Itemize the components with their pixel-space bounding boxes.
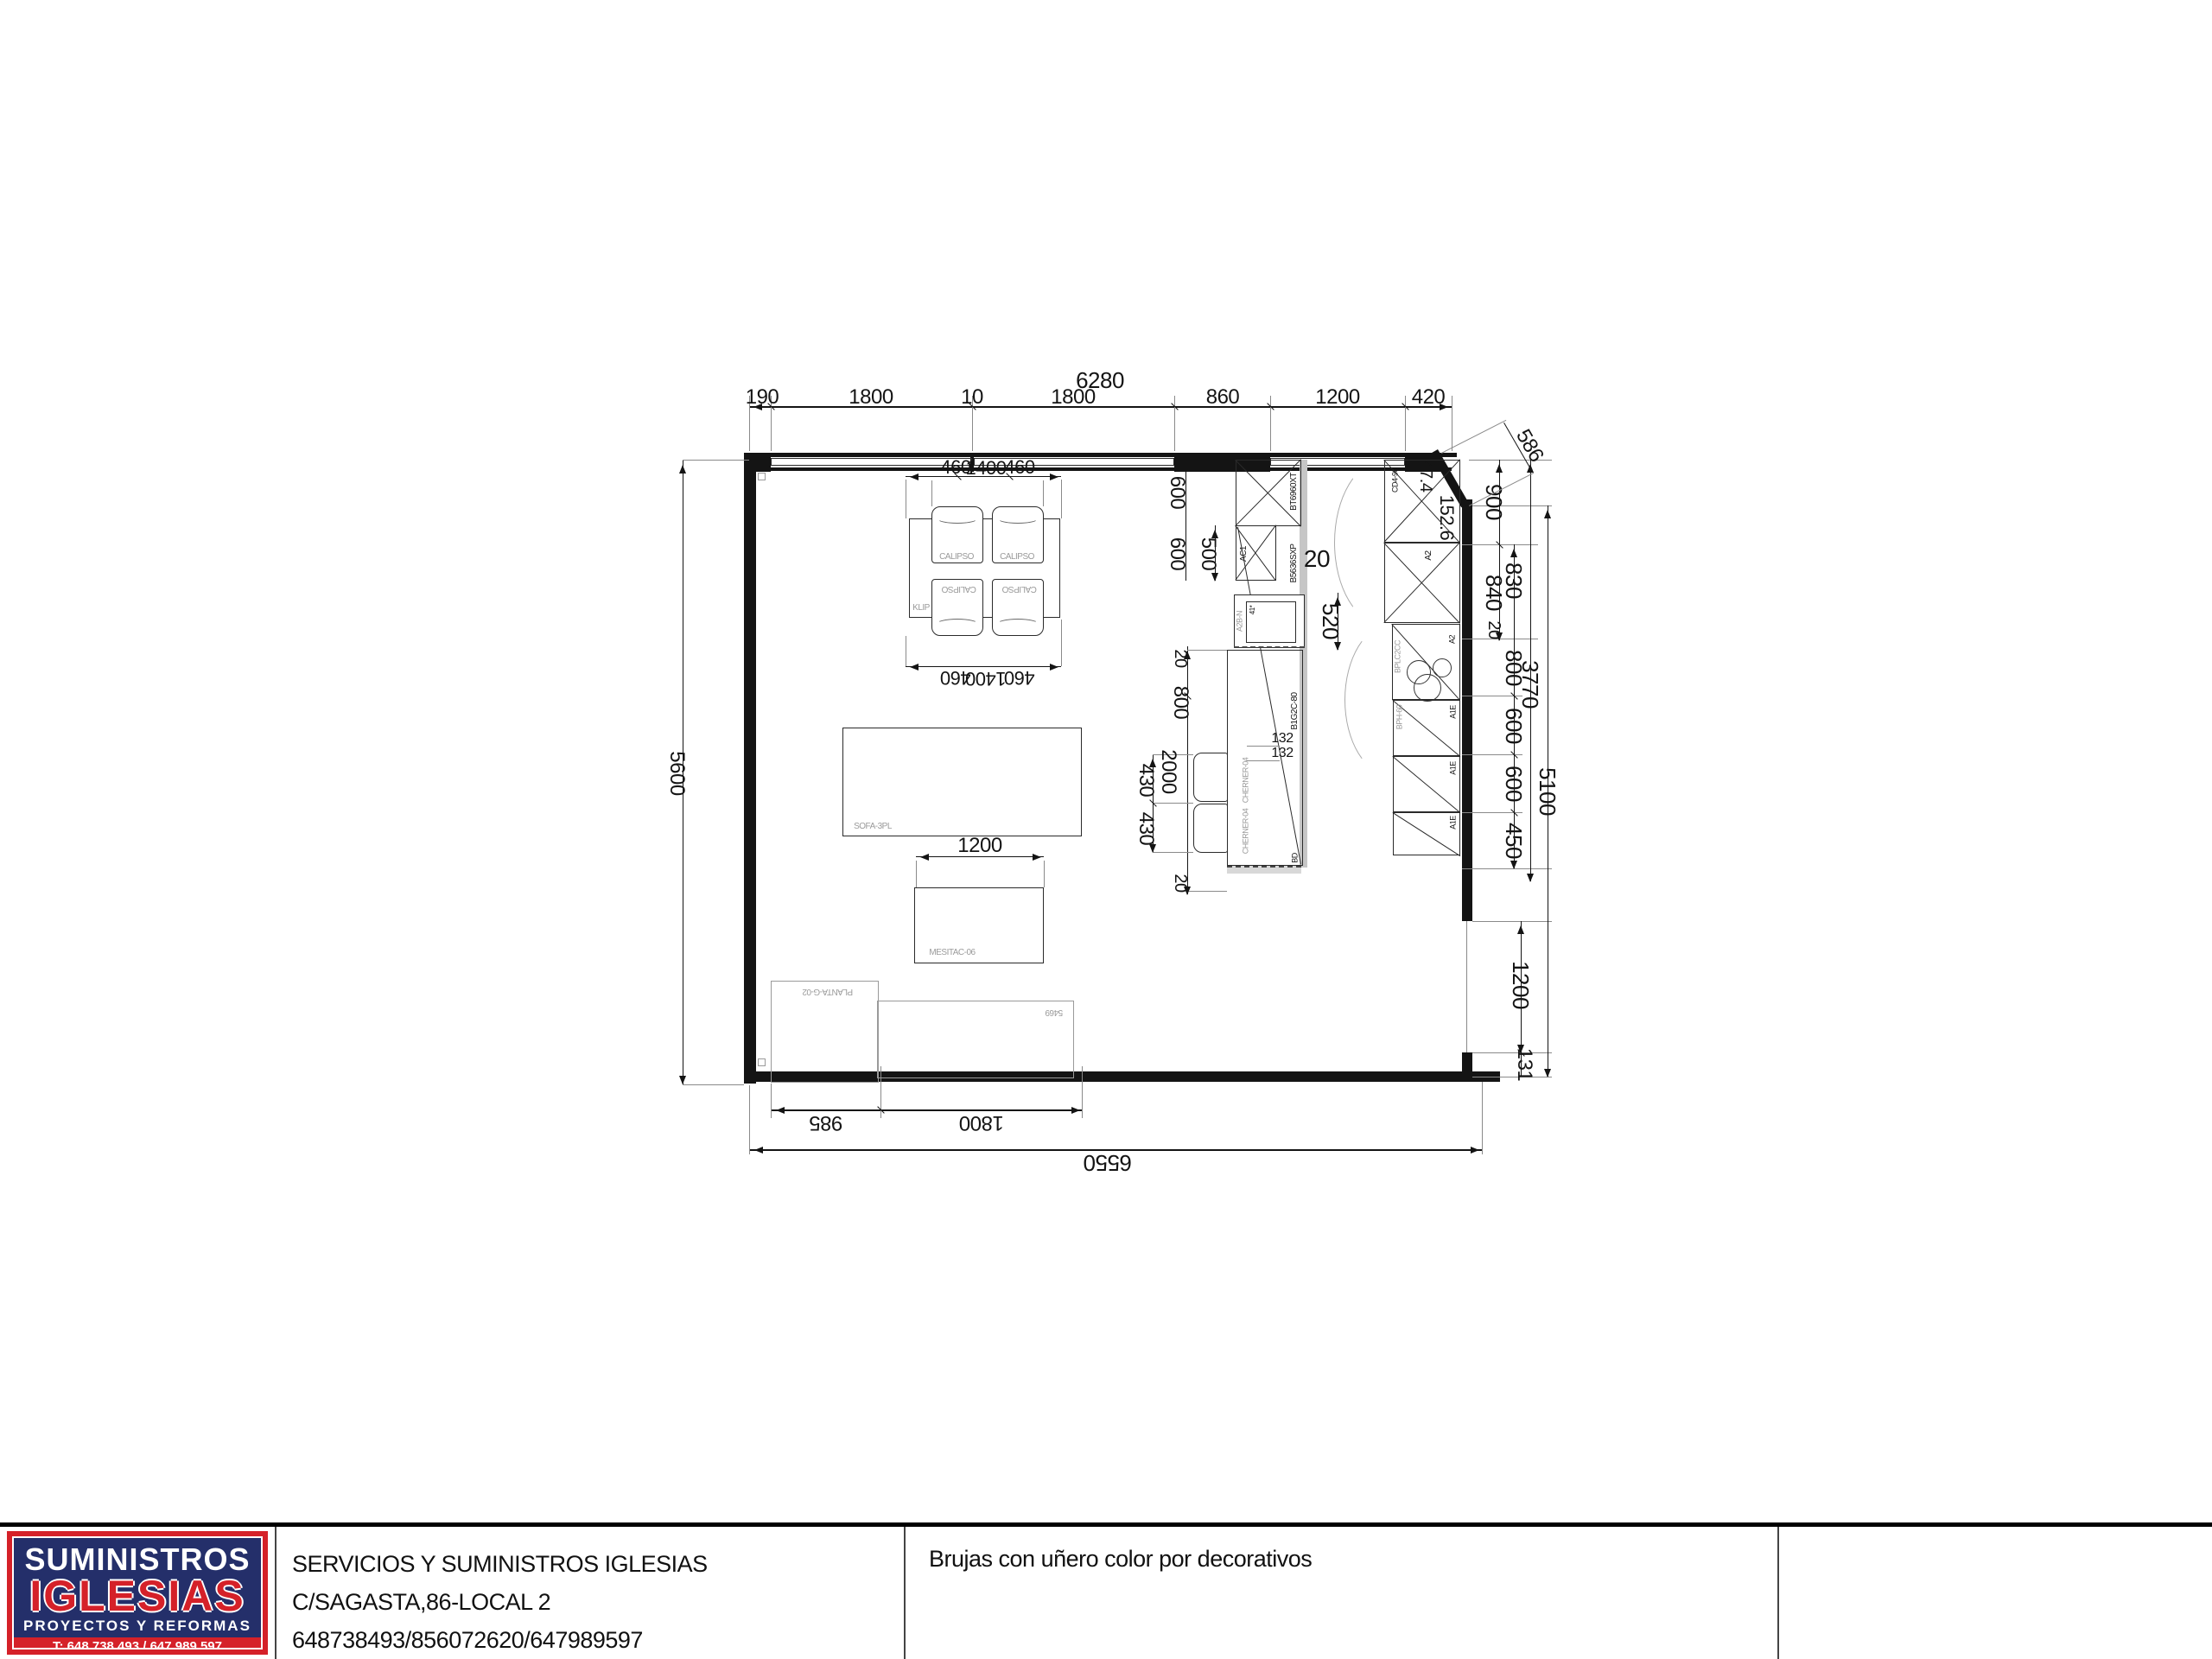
base-cabinet-label: A1E xyxy=(1450,761,1458,775)
ext-line xyxy=(1482,1082,1483,1154)
island-stool-label: CHERNER-04 xyxy=(1243,809,1250,855)
ext-line xyxy=(683,1084,744,1085)
island-stool-label: CHERNER-04 xyxy=(1243,758,1250,804)
arrow-icon xyxy=(1471,1147,1483,1154)
dim-table: 460 xyxy=(1004,668,1034,687)
company-name: SERVICIOS Y SUMINISTROS IGLESIAS xyxy=(292,1551,708,1578)
cell-divider xyxy=(1777,1527,1779,1659)
arrow-icon xyxy=(906,474,918,480)
sofa-label: SOFA-3PL xyxy=(854,823,892,831)
arrow-icon xyxy=(1071,1107,1084,1114)
wall-top-inner xyxy=(756,467,1452,471)
wall-left xyxy=(744,453,756,1084)
arrow-icon xyxy=(751,1147,763,1154)
dim-right: 450 xyxy=(1503,823,1525,859)
ext-line xyxy=(1472,1077,1552,1077)
drawing-description: Brujas con uñero color por decorativos xyxy=(929,1546,1312,1573)
arrow-icon xyxy=(1334,642,1341,654)
ext-line xyxy=(771,1084,772,1118)
table-label: KLIP xyxy=(912,604,930,613)
title-block: SUMINISTROS IGLESIAS PROYECTOS Y REFORMA… xyxy=(0,1522,2212,1659)
chair-label: CALIPSO xyxy=(1000,553,1034,562)
base-cabinet-label: A1E xyxy=(1450,816,1458,829)
island-foot-dashed xyxy=(1227,866,1301,874)
floorplan-sheet: 6280 190 1800 10 1800 860 1200 420 5600 … xyxy=(0,0,2212,1659)
dim-island-overhang: 132 xyxy=(1271,732,1293,746)
ext-line xyxy=(1270,396,1271,451)
dim-right-door: 1200 xyxy=(1510,961,1532,1009)
chair-cushion-line xyxy=(997,513,1039,524)
dim-top-seg: 1800 xyxy=(849,387,893,408)
dim-top-seg: 860 xyxy=(1206,387,1240,408)
ext-line xyxy=(1472,921,1552,922)
company-address: C/SAGASTA,86-LOCAL 2 xyxy=(292,1589,550,1616)
dim-coffee: 1200 xyxy=(957,836,1001,856)
logo-phone: T: 648 738 493 / 647 989 597 xyxy=(14,1637,261,1649)
arrow-icon xyxy=(1050,474,1062,480)
rug-label: 5469 xyxy=(1046,1007,1063,1016)
arrow-icon xyxy=(1211,573,1218,585)
ext-line xyxy=(1469,460,1552,461)
dim-left-total: 5600 xyxy=(666,751,687,795)
cell-divider xyxy=(275,1527,276,1659)
dim-chain-island xyxy=(1187,646,1188,894)
dim-bottom-total: 6550 xyxy=(1084,1152,1132,1174)
arrow-icon xyxy=(1527,874,1534,886)
ext-line xyxy=(1174,396,1175,451)
island-stool xyxy=(1193,753,1228,802)
dim-line-table-bottom xyxy=(906,666,1061,667)
chair-cushion-line xyxy=(997,619,1039,629)
ext-line xyxy=(906,636,906,666)
sink-note: 41* xyxy=(1249,606,1256,615)
dim-center: 500 xyxy=(1198,537,1218,571)
planter-label: PLANTA-G-02 xyxy=(803,987,853,995)
company-logo: SUMINISTROS IGLESIAS PROYECTOS Y REFORMA… xyxy=(7,1531,268,1655)
tall-unit-label: B5636SXP xyxy=(1290,544,1299,583)
corner-marker xyxy=(758,473,766,480)
dim-right: 600 xyxy=(1503,766,1525,802)
dim-right-total: 5100 xyxy=(1536,767,1559,816)
hob-cabinet-label: A2 xyxy=(1449,635,1457,644)
corner-marker xyxy=(758,1058,766,1066)
dim-center: 520 xyxy=(1319,603,1342,639)
dim-right-door: 131 xyxy=(1514,1048,1535,1082)
arrow-icon xyxy=(1510,545,1517,557)
dim-island-overhang: 132 xyxy=(1271,747,1293,760)
dim-right-total: 3770 xyxy=(1519,660,1541,709)
chair-cushion-line xyxy=(937,513,978,524)
arrow-icon xyxy=(917,854,929,861)
dim-right: 600 xyxy=(1503,708,1525,744)
dim-island: 20 xyxy=(1172,874,1189,892)
chair-label: CALIPSO xyxy=(1002,584,1037,593)
base-cabinet-label: A2 xyxy=(1425,550,1433,560)
ext-line xyxy=(1472,1052,1552,1053)
dim-island: 430 xyxy=(1135,764,1156,798)
chair-label: CALIPSO xyxy=(942,584,976,593)
arrow-icon xyxy=(906,664,918,671)
door-opening-line xyxy=(1466,921,1467,1052)
ext-line xyxy=(1187,650,1227,651)
sofa xyxy=(842,728,1082,836)
dim-table: 1400 xyxy=(966,459,1007,478)
wall-top-outer xyxy=(744,453,1457,457)
arrow-icon xyxy=(1510,861,1517,873)
dim-center: 600 xyxy=(1166,476,1187,510)
arrow-icon xyxy=(1544,506,1551,518)
island-stool xyxy=(1193,804,1228,853)
sink-label: A2B-N xyxy=(1236,611,1244,632)
wall-right-upper xyxy=(1462,499,1472,921)
ext-line xyxy=(1187,891,1227,892)
logo-tagline: PROYECTOS Y REFORMAS xyxy=(23,1618,251,1635)
ext-line xyxy=(1462,868,1552,869)
ext-line xyxy=(683,460,749,461)
logo-brand-main: IGLESIAS xyxy=(29,1571,245,1621)
company-logo-inner: SUMINISTROS IGLESIAS PROYECTOS Y REFORMA… xyxy=(12,1536,263,1649)
arrow-icon xyxy=(1496,461,1503,473)
dim-table: 460 xyxy=(1004,458,1034,477)
arrow-icon xyxy=(1544,1069,1551,1081)
ext-line xyxy=(749,1085,750,1154)
leader-line xyxy=(1247,760,1280,761)
base-cabinet-label: A1E xyxy=(1450,705,1458,719)
hob-base-label: BPH-60 xyxy=(1396,705,1404,730)
cell-divider xyxy=(904,1527,906,1659)
rug xyxy=(877,1001,1074,1078)
ext-line xyxy=(1452,396,1452,451)
dim-top-seg: 1800 xyxy=(1051,387,1095,408)
ext-line xyxy=(1153,803,1193,804)
chair-label: CALIPSO xyxy=(939,553,974,562)
dim-right: 20 xyxy=(1485,620,1503,639)
ext-line xyxy=(1061,620,1062,666)
dim-island: 2000 xyxy=(1158,749,1179,793)
dim-top-seg: 190 xyxy=(746,387,779,408)
leader-line xyxy=(1247,746,1280,747)
dim-top-seg: 420 xyxy=(1412,387,1446,408)
dim-island: 800 xyxy=(1170,686,1191,720)
dim-table: 1400 xyxy=(966,669,1007,688)
dim-bottom-seg: 1800 xyxy=(959,1112,1003,1133)
chair-cushion-line xyxy=(937,619,978,629)
dim-island: 20 xyxy=(1172,649,1189,667)
ext-line xyxy=(1153,852,1193,853)
dim-bottom-seg: 985 xyxy=(810,1112,843,1133)
dim-center-gap: 20 xyxy=(1304,547,1330,571)
coffee-table-label: MESITAC-06 xyxy=(929,949,975,957)
island-end-label: BD xyxy=(1292,853,1300,863)
arrow-icon xyxy=(1050,664,1062,671)
wall-right-stub xyxy=(1462,1052,1472,1082)
arrow-icon xyxy=(1033,854,1045,861)
island-label: B1G2C-80 xyxy=(1291,692,1300,729)
dim-top-seg: 1200 xyxy=(1315,387,1359,408)
arrow-icon xyxy=(1517,922,1524,934)
fridge-label: BT6960XT xyxy=(1290,473,1299,511)
arrow-icon xyxy=(1149,844,1156,856)
dim-right: 830 xyxy=(1503,563,1525,599)
arrow-icon xyxy=(679,1076,686,1088)
hob-burner xyxy=(1433,658,1452,677)
ext-line xyxy=(1061,480,1062,518)
dim-center: 600 xyxy=(1166,537,1187,571)
ext-line xyxy=(1044,861,1045,887)
ext-line xyxy=(916,861,917,887)
dashed-edge xyxy=(1234,646,1305,648)
arrow-icon xyxy=(679,461,686,474)
company-phones: 648738493/856072620/647989597 xyxy=(292,1627,643,1654)
dim-top-seg: 10 xyxy=(961,387,983,408)
ext-line xyxy=(906,480,906,518)
ext-line xyxy=(1043,480,1044,506)
dim-island: 430 xyxy=(1135,812,1156,846)
ext-line xyxy=(1405,396,1406,451)
ext-line xyxy=(931,480,932,506)
arrow-icon xyxy=(772,1107,785,1114)
